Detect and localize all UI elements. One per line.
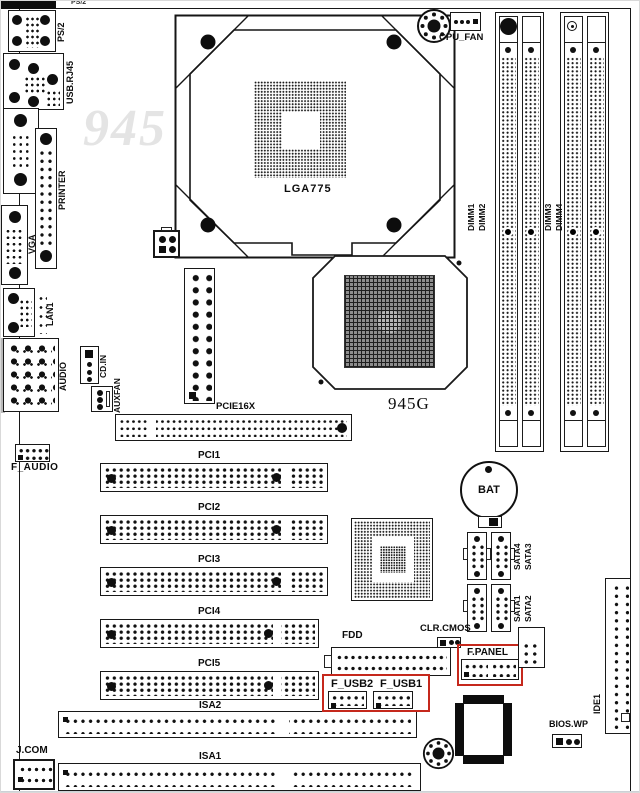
fdd-label: FDD [342,631,363,641]
ps2-edge-label: PS/2 [71,0,86,6]
clip-pin [593,410,599,416]
southbridge-chip [351,518,433,601]
pin [14,173,27,186]
ide-notch [621,713,630,722]
chip-edge [463,755,504,764]
pin [12,15,22,25]
chip-edge [455,703,464,756]
cpu-fan-label: CPU_FAN [439,33,483,43]
pci2-slot [100,515,328,544]
isa2-slot [58,711,417,738]
ps2-label: PS/2 [57,13,66,51]
f-usb2-label: F_USB2 [331,679,373,690]
pin-grid [470,596,484,622]
anchor-dot [272,525,281,534]
clip-pin [570,47,576,53]
ide1-label: IDE1 [593,684,602,724]
pin [87,362,92,367]
slot-key [281,465,289,489]
pci5-slot [100,671,319,700]
anchor-dot [107,578,116,587]
pin-grid [470,544,484,570]
cpu-fan-header [450,12,481,31]
pin-grid [38,149,54,247]
pin-grid [14,345,52,405]
sata3-connector [491,532,511,580]
side-tab [463,600,468,612]
side-tab [463,548,468,560]
anchor-dot [107,526,116,535]
atx12v-connector [153,230,180,258]
pin-last [189,392,196,399]
bios-wp-label: BIOS.WP [549,720,588,729]
dimm4-label: DIMM4 [555,194,564,240]
sata1-label: SATA1 [513,587,522,631]
battery-connector [478,516,502,528]
lga775-label: LGA775 [284,184,332,195]
motherboard-diagram: PS/2 945 PS/2 USB.RJ45 COM1 PRINTER [0,0,640,793]
isa1-slot [58,763,421,791]
mount-hole [500,18,517,35]
pci2-label: PCI2 [198,503,220,513]
printer-connector [35,128,57,269]
pin [498,536,504,542]
f-usb2-header [328,691,367,709]
clip-pin [528,47,534,53]
f-usb1-header [373,691,413,709]
dimm4-slot [587,16,606,447]
pci4-label: PCI4 [198,607,220,617]
pin [40,15,50,25]
printer-label: PRINTER [58,161,67,219]
cpu-socket: LGA775 [174,14,456,259]
pin [498,623,504,629]
f-audio-header [15,444,50,462]
pin-grid [19,299,32,327]
pin-grid [494,596,508,622]
slot-key [275,713,289,735]
com1-connector [3,108,39,194]
isa2-label: ISA2 [199,701,221,711]
pin [28,63,39,74]
pin [40,36,50,46]
clip-pin [570,410,576,416]
dimm1-slot [499,16,518,447]
pin [498,571,504,577]
anchor-dot [264,681,273,690]
pin-grid [376,694,410,706]
usb-rj45-connector [3,53,64,110]
j-com-header [13,759,55,790]
pci5-label: PCI5 [198,659,220,669]
atx-power-header [184,268,215,404]
pin-1 [18,777,23,782]
pcie16x-label: PCIE16X [216,402,255,412]
pin [169,236,176,243]
slot-key [281,569,289,593]
slot-pins [104,571,324,592]
anchor-dot [264,629,273,638]
auxfan-label: AUXFAN [113,377,122,415]
anchor-dot [107,682,116,691]
j-com-label: J.COM [16,746,48,756]
slot-pins [64,715,411,734]
pin [474,623,480,629]
pin [8,322,19,333]
lan1-label: LAN1 [46,297,55,331]
pin-grid [609,582,629,732]
dimm-notch [526,227,536,237]
pin [40,133,52,145]
usb-rj45-label: USB.RJ45 [66,55,75,109]
pin-grid [5,228,24,264]
pin [474,588,480,594]
pin-1 [63,770,68,775]
pin [159,246,166,253]
tab [161,227,172,231]
pin-1 [18,455,23,460]
dimm1-label: DIMM1 [467,194,476,240]
pin [8,293,19,304]
pin [12,36,22,46]
pin-grid [494,544,508,570]
pin [97,404,103,410]
dimm-notch [503,227,513,237]
northbridge-die [344,275,435,368]
dimm2-slot [522,16,541,447]
pin-1 [464,672,469,677]
vga-connector [1,205,28,285]
pin [97,397,103,403]
sata2-label: SATA2 [524,587,533,631]
pin [574,739,580,745]
pci4-slot [100,619,319,648]
pin-1 [440,640,446,646]
pin-1 [331,703,336,708]
slot-pins [64,768,415,787]
pci3-slot [100,567,328,596]
cd-in-label: CD.IN [99,347,108,385]
cd-in-header [80,346,99,384]
lan1-connector [3,288,35,337]
pin [489,518,498,526]
sata4-connector [467,532,487,580]
clip-pin [593,47,599,53]
bracket [106,391,110,407]
audio-label: AUDIO [59,356,68,398]
pin-grid [19,764,53,787]
slot-cap [565,420,582,446]
clip-pin [528,410,534,416]
isa1-label: ISA1 [199,752,221,762]
slot-pins [104,519,324,540]
pin-grid [11,134,31,168]
slot-pins [104,675,315,696]
pin [47,74,58,85]
dimm3-label: DIMM3 [544,194,553,240]
lga-pin-grid-center [282,112,320,149]
pci3-label: PCI3 [198,555,220,565]
pin-1 [376,703,381,708]
gap [488,661,493,679]
pin-grid [186,270,212,401]
pin [466,20,470,24]
anchor-dot [272,577,281,586]
anchor-dot [337,423,347,433]
chip-edge [503,703,512,756]
pin-grid [24,76,46,94]
sata3-label: SATA3 [524,535,533,579]
pin [566,739,572,745]
pin [498,588,504,594]
pin [474,571,480,577]
pin [474,536,480,542]
anchor-dot [107,474,116,483]
slot-cap [588,420,605,446]
pin [460,20,464,24]
audio-connector [3,338,59,412]
pci1-slot [100,463,328,492]
pin [473,19,478,24]
pcie16x-slot [115,414,352,441]
clip-pin [505,47,511,53]
slot-key [149,416,156,439]
pin [9,267,21,279]
dimm-bank-12 [495,12,544,452]
pin-1 [63,717,68,722]
watermark-945: 945 [83,99,167,158]
dimm-notch [591,227,601,237]
bga-center-grid [380,546,406,573]
pin [9,211,21,223]
sys-fan-icon [422,737,455,770]
dimm2-label: DIMM2 [478,194,487,240]
pin [87,370,92,375]
pci1-label: PCI1 [198,451,220,461]
pin-grid [336,652,447,671]
dimm-notch [568,227,578,237]
mount-hole-dot [571,25,574,28]
pin-grid [522,642,539,667]
anchor-dot [272,473,281,482]
pin-1 [85,350,93,358]
pin [97,390,103,396]
ide1-connector [605,578,631,734]
pin-grid [25,16,39,48]
bios-wp-jumper [552,734,582,748]
slot-key [273,673,281,697]
pin-grid [46,90,60,106]
dimm-bank-34 [560,12,609,452]
slot-key [281,517,289,541]
vga-label: VGA [28,229,37,259]
ps2-connector [8,10,56,52]
bios-chip [455,695,512,764]
pin [87,377,92,382]
slot-cap [523,420,540,446]
sata4-label: SATA4 [513,535,522,579]
f-usb1-label: F_USB1 [380,679,422,690]
pin [169,246,176,253]
top-edge-bar [1,1,56,9]
pin [9,92,20,103]
fdd-connector [331,647,451,676]
pin [9,59,20,70]
pin [454,20,458,24]
clip-pin [505,410,511,416]
pin [40,250,52,262]
auxfan-header [91,386,113,412]
f-panel-header [461,659,519,680]
battery-dot [485,466,492,473]
northbridge-label: 945G [388,395,430,412]
chip-edge [463,695,504,704]
fdd-notch [324,655,332,668]
battery-label: BAT [478,485,500,496]
pin-1 [556,738,563,745]
sata2-connector [491,584,511,632]
anchor-dot [107,630,116,639]
slot-pins [104,467,324,488]
slot-cap [588,17,605,43]
northbridge-chip [311,254,469,391]
slot-cap [500,420,517,446]
clr-cmos-label: CLR.CMOS [420,624,471,634]
pin [159,236,166,243]
aux-header [518,627,545,668]
f-audio-label: F_AUDIO [11,463,58,473]
slot-pins [104,623,315,644]
dimm3-slot [564,16,583,447]
slot-key [277,765,291,788]
f-panel-label: F.PANEL [467,648,508,658]
pin [28,96,39,107]
slot-key [273,621,281,645]
pin [14,114,27,127]
slot-cap [523,17,540,43]
pin [449,640,454,645]
